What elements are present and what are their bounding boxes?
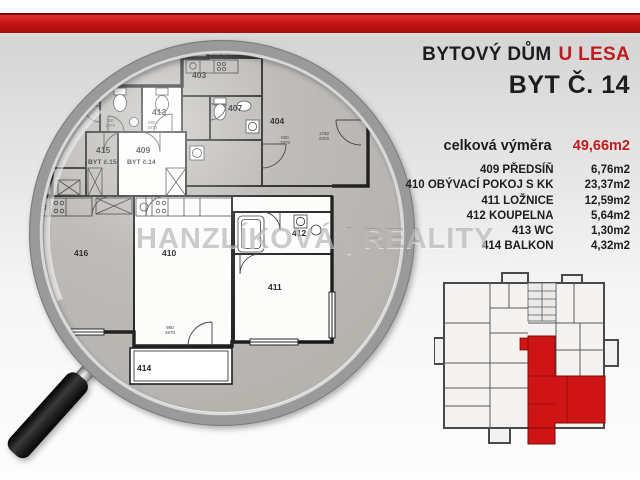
area-row-label: 414 BALKON (482, 240, 554, 253)
total-area-row: celková výměra 49,66m2 (405, 139, 630, 153)
building-overview-plan (434, 266, 640, 476)
area-row-value: 12,59m2 (558, 195, 630, 208)
area-row-label: 410 OBÝVACÍ POKOJ S KK (405, 179, 553, 192)
area-row: 411 LOŽNICE 12,59m2 (405, 193, 630, 208)
building-title-prefix: BYTOVÝ DŮM (422, 44, 551, 65)
total-area-label: celková výměra (444, 140, 552, 153)
listing-flyer: 419 403 407 404 413 415 409 416 410 412 … (0, 0, 640, 480)
area-row-value: 1,30m2 (558, 225, 630, 238)
unit-title: BYT Č. 14 (422, 71, 630, 100)
area-row: 412 KOUPELNA 5,64m2 (405, 208, 630, 223)
area-row-value: 5,64m2 (558, 210, 630, 223)
area-row-label: 412 KOUPELNA (467, 210, 554, 223)
building-title-accent: U LESA (559, 44, 630, 65)
area-row-value: 4,32m2 (558, 240, 630, 253)
area-row-label: 413 WC (512, 225, 554, 238)
header-panel: BYTOVÝ DŮMU LESA BYT Č. 14 (422, 44, 630, 100)
area-row: 413 WC 1,30m2 (405, 223, 630, 238)
area-row: 414 BALKON 4,32m2 (405, 238, 630, 253)
area-row-label: 411 LOŽNICE (481, 195, 553, 208)
area-row-label: 409 PŘEDSÍŇ (480, 164, 554, 177)
area-row-value: 23,37m2 (558, 179, 630, 192)
total-area-value: 49,66m2 (556, 140, 630, 153)
area-row: 410 OBÝVACÍ POKOJ S KK 23,37m2 (405, 177, 630, 192)
area-table: celková výměra 49,66m2 409 PŘEDSÍŇ 6,76m… (405, 139, 630, 253)
building-title: BYTOVÝ DŮMU LESA (422, 44, 630, 66)
area-row: 409 PŘEDSÍŇ 6,76m2 (405, 162, 630, 177)
area-row-value: 6,76m2 (558, 164, 630, 177)
